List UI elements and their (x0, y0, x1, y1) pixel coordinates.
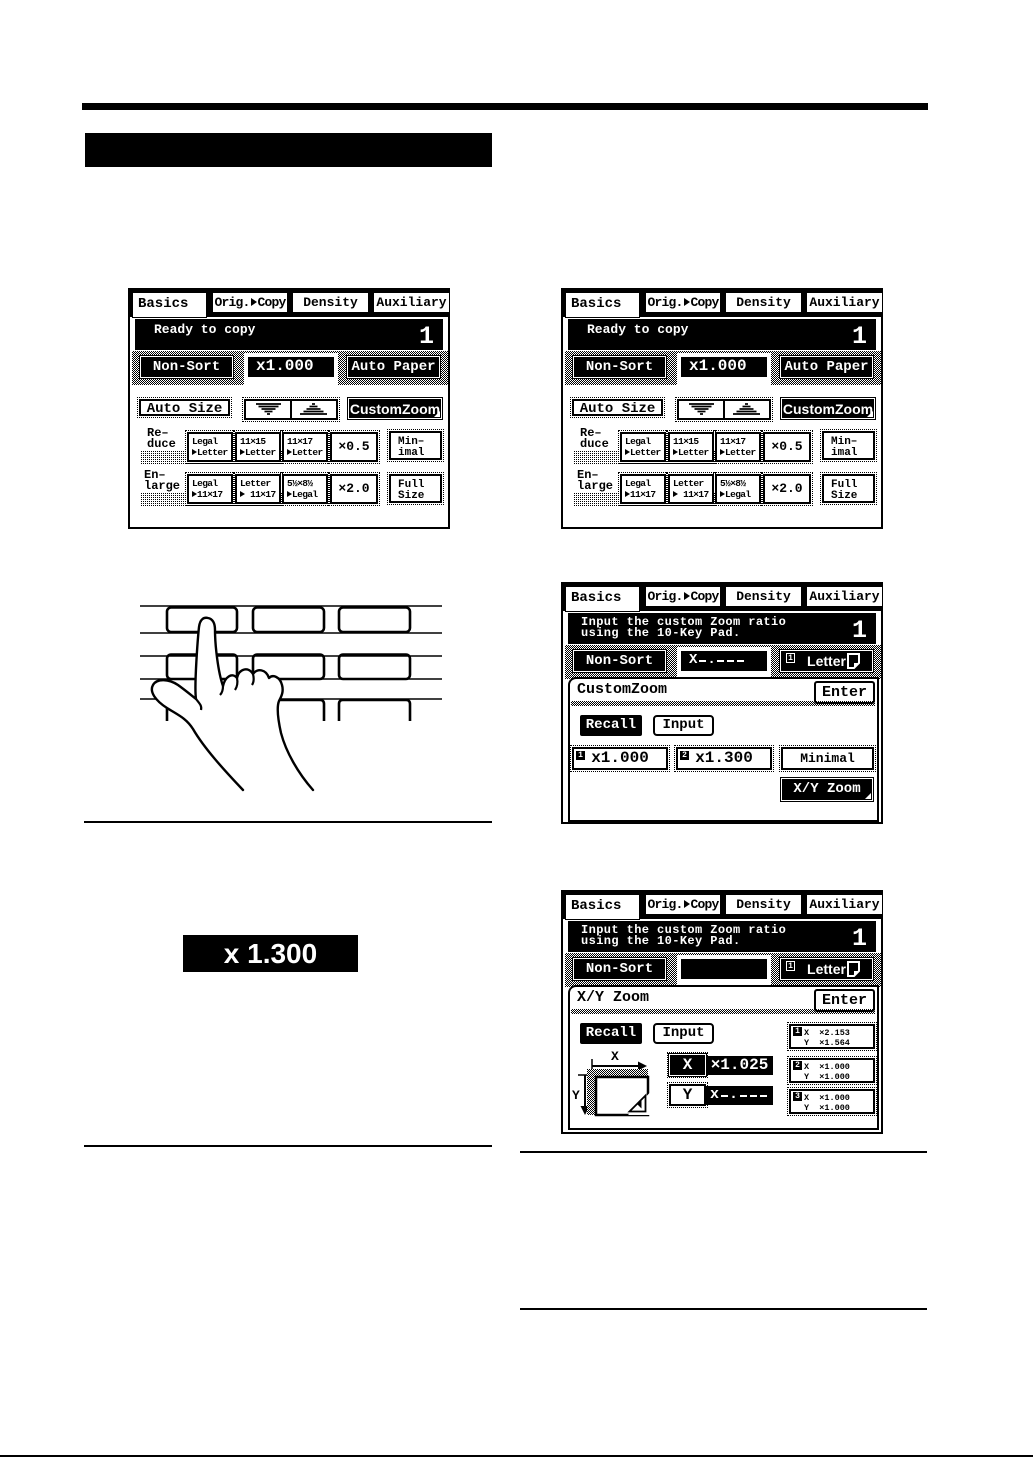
svg-text:X: X (611, 1049, 619, 1064)
svg-text:Y: Y (572, 1088, 580, 1103)
